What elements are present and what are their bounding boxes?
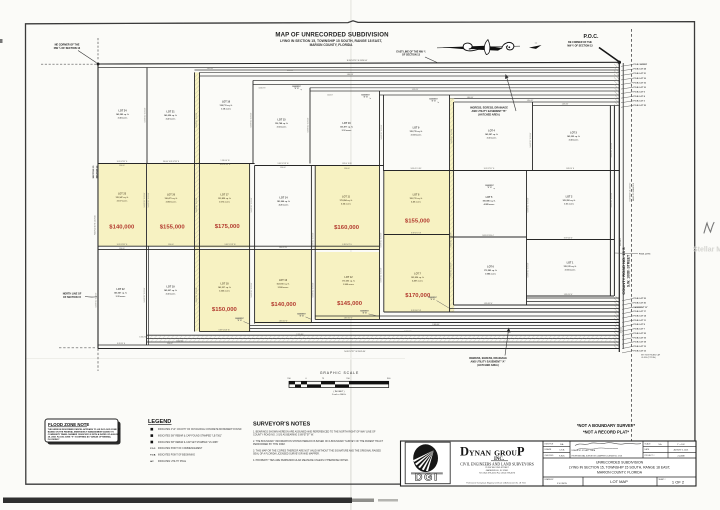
svg-text:LOT 20: LOT 20	[167, 194, 176, 197]
svg-text:330.00': 330.00'	[280, 167, 286, 169]
svg-text:1315.74': 1315.74'	[139, 336, 147, 338]
svg-text:145,047 sq. ft.: 145,047 sq. ft.	[114, 292, 128, 295]
svg-text:A/C: A/C	[150, 460, 154, 463]
svg-text:$145,000: $145,000	[337, 301, 363, 307]
svg-text:N 00°07'42" E 396.00': N 00°07'42" E 396.00'	[527, 262, 529, 277]
svg-text:$140,000: $140,000	[271, 302, 297, 308]
svg-text:PROJECT #: PROJECT #	[645, 455, 655, 457]
svg-text:LYING IN SECTION 15, TOWNSHIP: LYING IN SECTION 15, TOWNSHIP 15 SOUTH, …	[569, 466, 671, 470]
svg-text:1309.60' W: 1309.60' W	[344, 317, 353, 319]
svg-text:LOT 16: LOT 16	[222, 101, 231, 104]
svg-text:330.02': 330.02'	[167, 343, 173, 345]
svg-text:LOT 4: LOT 4	[488, 130, 495, 133]
svg-text:LOT 6: LOT 6	[487, 266, 494, 269]
svg-text:LOT 8: LOT 8	[413, 194, 420, 197]
svg-text:S 89°52'51" E 2624.56': S 89°52'51" E 2624.56'	[347, 60, 368, 62]
svg-text:150: 150	[287, 378, 291, 380]
svg-text:N 00°07'42" E 396.00': N 00°07'42" E 396.00'	[530, 132, 532, 147]
svg-text:135,347 sq. ft.: 135,347 sq. ft.	[115, 196, 129, 199]
svg-text:300: 300	[387, 378, 391, 380]
svg-text:( IN FEET ): ( IN FEET )	[333, 391, 344, 393]
svg-text:PROFESSIONAL SURVEYOR & MAPPER: PROFESSIONAL SURVEYOR & MAPPER LICENSE N…	[572, 455, 623, 458]
svg-text:P.O.B. LOT 14: P.O.B. LOT 14	[634, 315, 647, 318]
svg-text:330.05' W: 330.05' W	[279, 247, 287, 249]
svg-text:195,956 sq. ft.: 195,956 sq. ft.	[411, 276, 425, 279]
svg-text:INDICATES 5/8" REBAR & CAP SET: INDICATES 5/8" REBAR & CAP SET STAMPED "…	[158, 441, 218, 444]
svg-text:EASEMENT: EASEMENT	[292, 85, 300, 88]
svg-text:152,815 sq. ft.: 152,815 sq. ft.	[276, 283, 290, 286]
svg-text:DRAWN BY: DRAWN BY	[545, 478, 555, 481]
svg-text:3.22 acres: 3.22 acres	[166, 119, 177, 121]
svg-text:N 00°12'35" E 1317.56': N 00°12'35" E 1317.56'	[95, 215, 97, 235]
svg-text:1433.83' 330.4': 1433.83' 330.4'	[482, 235, 494, 237]
svg-text:N 00°07'42" E 396.00': N 00°07'42" E 396.00'	[312, 282, 314, 297]
svg-text:1495.05' S 89°: 1495.05' S 89°	[410, 168, 421, 170]
svg-text:OF SECTION 13: OF SECTION 13	[402, 54, 421, 57]
svg-text:P.O.B. LOT 13: P.O.B. LOT 13	[634, 346, 646, 348]
svg-text:Tel: (352) 378-4154 Fax: (35: Tel: (352) 378-4154 Fax: (352) 378-4676	[479, 473, 516, 475]
svg-text:N 00°07'42" E 396.00': N 00°07'42" E 396.00'	[251, 197, 253, 212]
svg-text:135,741 sq. ft.: 135,741 sq. ft.	[563, 265, 577, 268]
svg-text:N 00°07'42" E 396.00': N 00°07'42" E 396.00'	[381, 124, 383, 139]
svg-text:1313.46': 1313.46'	[404, 331, 412, 333]
svg-text:N 00°07'42" E 396.00': N 00°07'42" E 396.00'	[144, 287, 146, 302]
svg-text:P.O.C.: P.O.C.	[150, 448, 156, 450]
svg-text:138,711 sq. ft.: 138,711 sq. ft.	[219, 104, 232, 107]
svg-text:COUNTY ROAD NO. 3 S/S AS BEARI: COUNTY ROAD NO. 3 S/S AS BEARING S 89°57…	[253, 433, 314, 436]
svg-text:P.O.B. LOT 21: P.O.B. LOT 21	[634, 73, 646, 75]
svg-text:(HATCHED AREA): (HATCHED AREA)	[478, 114, 500, 117]
svg-text:AUGUST 5, 2021: AUGUST 5, 2021	[674, 449, 689, 452]
svg-text:Stellar MLS: Stellar MLS	[693, 247, 720, 254]
svg-text:N 00°07'42" E 396.00': N 00°07'42" E 396.00'	[196, 287, 198, 302]
svg-text:P.O.B. LOT 22: P.O.B. LOT 22	[634, 333, 646, 335]
svg-text:1435.24' W: 1435.24' W	[564, 294, 573, 296]
svg-text:330.00': 330.00'	[119, 165, 125, 167]
svg-text:GRAPHIC SCALE: GRAPHIC SCALE	[320, 371, 359, 375]
svg-text:1470.25': 1470.25'	[412, 89, 419, 91]
svg-text:MARION COUNTY, FLORIDA: MARION COUNTY, FLORIDA	[597, 471, 643, 475]
svg-text:N 00°07'42" E 396.00': N 00°07'42" E 396.00'	[381, 267, 383, 282]
svg-text:LOT 14: LOT 14	[279, 197, 288, 200]
svg-text:INDICATES 4"x4" COUNTY OF OCTA: INDICATES 4"x4" COUNTY OF OCTAGONAL CONC…	[158, 428, 242, 431]
svg-text:4.385 acres: 4.385 acres	[484, 203, 496, 206]
svg-text:$150,000: $150,000	[212, 307, 238, 313]
svg-text:$155,000: $155,000	[405, 218, 431, 224]
svg-text:LOT 22: LOT 22	[116, 288, 125, 291]
svg-text:3.01 acres: 3.01 acres	[564, 204, 575, 206]
svg-text:N 00°07'42" E 396.00': N 00°07'42" E 396.00'	[196, 112, 198, 127]
svg-text:330.00': 330.00'	[119, 248, 125, 250]
svg-text:P.O.B. LOT 8: P.O.B. LOT 8	[634, 324, 645, 326]
svg-text:1450.82': 1450.82'	[527, 100, 534, 102]
svg-text:S 89°54'1" E: S 89°54'1" E	[342, 244, 352, 246]
svg-text:140,056 sq. ft.: 140,056 sq. ft.	[164, 114, 178, 117]
svg-text:330.00' S 89°47'33" E: 330.00' S 89°47'33" E	[163, 161, 180, 163]
svg-text:P.O.B. LOT 10: P.O.B. LOT 10	[634, 87, 646, 89]
svg-text:$140,000: $140,000	[109, 224, 135, 230]
svg-text:LOT 7: LOT 7	[414, 273, 421, 276]
svg-text:S 89°51'33" E: S 89°51'33" E	[117, 244, 128, 246]
svg-text:SECTION 10: SECTION 10	[93, 165, 95, 179]
svg-text:P.O.B. LOT 18: P.O.B. LOT 18	[634, 342, 646, 344]
svg-text:330.00': 330.00'	[168, 244, 174, 246]
svg-text:DWG FILE: DWG FILE	[545, 444, 554, 446]
svg-text:$170,000: $170,000	[405, 293, 431, 299]
svg-text:142,237 sq. ft.: 142,237 sq. ft.	[218, 286, 232, 289]
svg-text:SEAL OF A FLORIDA LICENSED SUR: SEAL OF A FLORIDA LICENSED SURVEYOR AND …	[253, 453, 320, 456]
svg-text:SECTION 15: SECTION 15	[96, 165, 98, 179]
svg-text:$155,000: $155,000	[160, 224, 186, 230]
svg-text:N 00°07'42" E 396.00': N 00°07'42" E 396.00'	[148, 192, 150, 207]
svg-text:P.O.B. LOT 5: P.O.B. LOT 5	[639, 254, 650, 256]
svg-text:NE CORNER OF THE: NE CORNER OF THE	[55, 44, 80, 47]
svg-text:MAP OF UNRECORDED SUBDIVISION: MAP OF UNRECORDED SUBDIVISION	[275, 32, 388, 39]
svg-text:$160,000: $160,000	[334, 225, 360, 231]
svg-text:P.O.B. LOT 24: P.O.B. LOT 24	[634, 68, 647, 71]
svg-text:LS 4696 (TYPICAL): LS 4696 (TYPICAL)	[641, 356, 656, 359]
svg-text:*NOT A RECORD PLAT*: *NOT A RECORD PLAT*	[583, 429, 629, 434]
svg-text:P.O.B. LOT 9: P.O.B. LOT 9	[634, 91, 645, 93]
svg-text:N 00°07'42" E 396.00': N 00°07'42" E 396.00'	[250, 112, 252, 127]
svg-text:1495.05': 1495.05'	[207, 68, 214, 70]
svg-text:N 00°07'42" E 396.00': N 00°07'42" E 396.00'	[312, 232, 314, 247]
svg-text:3.33 acres: 3.33 acres	[116, 296, 127, 298]
svg-text:NW ¼ OF SECTION 13: NW ¼ OF SECTION 13	[567, 43, 593, 47]
svg-text:3.508 acres: 3.508 acres	[278, 287, 290, 289]
svg-text:P.O.B. LOT 15: P.O.B. LOT 15	[634, 82, 646, 84]
svg-text:LOT MAP: LOT MAP	[610, 479, 628, 484]
svg-text:P.O.B. LOT 7: P.O.B. LOT 7	[634, 329, 645, 331]
svg-text:MARION COUNTY, FLORIDA: MARION COUNTY, FLORIDA	[310, 43, 354, 47]
svg-text:S 89°53' E: S 89°53' E	[117, 343, 126, 345]
svg-text:S 89°52'18" W: S 89°52'18" W	[278, 163, 289, 165]
svg-text:N 00°07'42" E 396.00': N 00°07'42" E 396.00'	[451, 262, 453, 277]
svg-text:P.O.C.: P.O.C.	[584, 34, 599, 40]
svg-text:1 OF 2: 1 OF 2	[672, 480, 685, 485]
svg-text:133,859 sq. ft.: 133,859 sq. ft.	[218, 197, 232, 200]
svg-text:S 00°02'23" W 1337.71': S 00°02'23" W 1337.71'	[630, 182, 632, 202]
svg-text:S 89°57'4" W: S 89°57'4" W	[411, 232, 421, 234]
svg-text:P.O.B. LOT 20: P.O.B. LOT 20	[634, 302, 646, 304]
svg-text:FLOODING".: FLOODING".	[48, 439, 61, 441]
svg-text:N.A.: N.A.	[560, 443, 564, 446]
svg-text:4.497 acres: 4.497 acres	[412, 280, 424, 283]
svg-text:OF SECTION 15: OF SECTION 15	[63, 296, 82, 299]
svg-text:0: 0	[305, 378, 307, 380]
svg-text:S 89°57'51" E: S 89°57'51" E	[484, 168, 495, 170]
svg-text:S 89°56'4" W: S 89°56'4" W	[411, 310, 421, 312]
svg-text:CIVIL ENGINEERS AND LAND SURVE: CIVIL ENGINEERS AND LAND SURVEYORS	[460, 462, 534, 466]
svg-text:N 00°07'42" E 396.00': N 00°07'42" E 396.00'	[381, 232, 383, 247]
svg-text:LOT 1: LOT 1	[567, 262, 574, 265]
svg-text:SHEET #: SHEET #	[659, 479, 666, 481]
svg-text:183,066 sq. ft.: 183,066 sq. ft.	[277, 200, 291, 203]
svg-text:P.O.B. LOT 16: P.O.B. LOT 16	[634, 78, 646, 80]
svg-text:LOT 11: LOT 11	[342, 196, 351, 199]
svg-text:4.49 acres: 4.49 acres	[411, 201, 422, 204]
svg-text:$175,000: $175,000	[215, 224, 241, 230]
svg-text:75: 75	[322, 378, 325, 380]
svg-text:190,986 sq. ft.: 190,986 sq. ft.	[482, 200, 496, 203]
svg-text:145,007 sq. ft.: 145,007 sq. ft.	[164, 289, 178, 292]
svg-text:29 SW SECOND STREET: 29 SW SECOND STREET	[485, 467, 509, 469]
svg-text:N 00°07'42" E 396.00': N 00°07'42" E 396.00'	[307, 117, 309, 132]
svg-text:145,382 sq. ft.: 145,382 sq. ft.	[116, 113, 130, 116]
svg-text:S.W. 100th STREET: S.W. 100th STREET	[626, 254, 630, 287]
svg-text:GAINESVILLE, FL 32601: GAINESVILLE, FL 32601	[486, 469, 509, 472]
svg-text:S 89°47'33" E: S 89°47'33" E	[117, 161, 128, 163]
svg-text:INDICATES POINT OF COMMENCEMEN: INDICATES POINT OF COMMENCEMENT	[158, 447, 203, 450]
svg-text:1" = 100': 1" = 100'	[677, 444, 685, 446]
svg-text:LOT 18: LOT 18	[220, 283, 229, 286]
svg-text:3.116 acres: 3.116 acres	[565, 270, 577, 272]
svg-text:N 00°07'42" E 396.00': N 00°07'42" E 396.00'	[144, 107, 146, 122]
svg-text:135,877 sq. ft.: 135,877 sq. ft.	[340, 126, 354, 129]
svg-text:K.W. SMITH: K.W. SMITH	[557, 483, 568, 485]
svg-text:(HATCHED AREA): (HATCHED AREA)	[477, 364, 499, 367]
svg-text:1435.83' W: 1435.83' W	[484, 303, 493, 305]
svg-text:PERFORMED BY THIS FIRM.: PERFORMED BY THIS FIRM.	[253, 443, 286, 446]
svg-text:4.20 acres: 4.20 acres	[279, 204, 290, 207]
svg-text:1435.8' E: 1435.8' E	[258, 88, 266, 90]
svg-text:SURVEYOR'S NOTES: SURVEYOR'S NOTES	[253, 421, 310, 427]
svg-text:3.34 acres: 3.34 acres	[569, 139, 580, 142]
svg-text:INDICATES 5/8" REBAR & CAP FOU: INDICATES 5/8" REBAR & CAP FOUND STAMPED…	[158, 434, 222, 437]
svg-text:K.W.S.: K.W.S.	[559, 455, 565, 457]
svg-text:N 00°07'42" E 396.00': N 00°07'42" E 396.00'	[527, 197, 529, 212]
svg-text:1480.98': 1480.98'	[347, 74, 354, 76]
svg-text:S 89°51'18" W: S 89°51'18" W	[225, 244, 236, 246]
svg-text:SCALE: SCALE	[645, 443, 652, 446]
svg-text:1490.11': 1490.11'	[287, 70, 294, 72]
svg-text:P.O.B.: P.O.B.	[150, 455, 156, 457]
svg-text:3.985 acres: 3.985 acres	[485, 274, 497, 276]
svg-text:INDICATES POINT OF BEGINNING: INDICATES POINT OF BEGINNING	[158, 454, 195, 457]
svg-text:CHECKED: CHECKED	[545, 455, 554, 457]
svg-text:*NOT A BOUNDARY SURVEY*: *NOT A BOUNDARY SURVEY*	[577, 423, 635, 428]
svg-text:P.O.B. SURVEY: P.O.B. SURVEY	[634, 64, 648, 66]
svg-text:LOT 17: LOT 17	[220, 194, 229, 197]
svg-text:FLOOD ZONE NOTE: FLOOD ZONE NOTE	[48, 422, 89, 427]
svg-text:LOT 10: LOT 10	[342, 122, 351, 125]
svg-text:P.O.B. LOT 35: P.O.B. LOT 35	[634, 105, 646, 107]
svg-text:LOT 2: LOT 2	[566, 196, 573, 199]
svg-text:1445.60': 1445.60'	[562, 104, 569, 106]
svg-text:LOT 15: LOT 15	[277, 119, 286, 122]
svg-text:P.O.B. LOT 12: P.O.B. LOT 12	[634, 350, 646, 352]
svg-text:EASEMENT: EASEMENT	[485, 184, 493, 187]
svg-text:P.O.B. LOT 23: P.O.B. LOT 23	[634, 298, 646, 300]
svg-text:145,287 sq. ft.: 145,287 sq. ft.	[485, 133, 499, 136]
svg-text:DRAWN: DRAWN	[545, 448, 552, 451]
svg-text:170,293 sq. ft.: 170,293 sq. ft.	[342, 280, 356, 283]
svg-text:3.33 acres: 3.33 acres	[487, 138, 498, 140]
svg-text:3.107 acres: 3.107 acres	[117, 201, 129, 203]
svg-text:125,352 sq. ft.: 125,352 sq. ft.	[562, 199, 576, 202]
svg-text:N 00°07'42" E 396.00': N 00°07'42" E 396.00'	[144, 192, 146, 207]
svg-text:3.909 acres: 3.909 acres	[343, 284, 355, 286]
svg-text:195,731 sq. ft.: 195,731 sq. ft.	[409, 197, 423, 200]
svg-text:4. PROPERTY TIES ARE PERPENDIC: 4. PROPERTY TIES ARE PERPENDICULAR MEASU…	[253, 459, 349, 462]
svg-text:LOT 12: LOT 12	[344, 276, 353, 279]
svg-text:173,583 sq. ft.: 173,583 sq. ft.	[484, 269, 498, 272]
svg-text:N.A.: N.A.	[659, 443, 663, 446]
svg-text:136,748 sq. ft.: 136,748 sq. ft.	[275, 122, 289, 125]
svg-text:3.34 acres: 3.34 acres	[118, 117, 129, 120]
svg-text:N 00°07'42" E 396.00': N 00°07'42" E 396.00'	[611, 192, 613, 207]
svg-text:NW ¼ OF SECTION 13: NW ¼ OF SECTION 13	[54, 46, 81, 50]
svg-text:N 00°07'42" E 396.00': N 00°07'42" E 396.00'	[95, 292, 97, 307]
svg-text:1425.8': 1425.8'	[327, 95, 333, 97]
svg-text:DGI: DGI	[415, 472, 439, 484]
svg-text:Professional Surveying & Mappi: Professional Surveying & Mapping Certifi…	[466, 482, 525, 485]
svg-text:1315.4' S 89°: 1315.4' S 89°	[342, 163, 352, 165]
svg-text:ASPHALT: ASPHALT	[619, 238, 622, 246]
svg-text:3.33 acres: 3.33 acres	[166, 294, 177, 296]
svg-text:1 330.00' W: 1 330.00' W	[221, 160, 230, 162]
svg-text:P.O.B. LOT 3: P.O.B. LOT 3	[634, 101, 645, 103]
svg-text:BASIS OF BEARINGS: BASIS OF BEARINGS	[632, 182, 635, 201]
svg-text:LOT 23: LOT 23	[118, 193, 127, 196]
svg-text:1460.40': 1460.40'	[467, 97, 474, 99]
svg-text:1 inch = 300 ft.: 1 inch = 300 ft.	[332, 393, 347, 396]
svg-text:3.083 acres: 3.083 acres	[166, 202, 178, 204]
svg-text:1313.33': 1313.33'	[620, 326, 622, 333]
svg-text:150: 150	[346, 378, 350, 380]
svg-text:EASEMENT: EASEMENT	[361, 93, 369, 96]
svg-text:S 89°53'18" W: S 89°53'18" W	[219, 330, 230, 332]
svg-text:1309.62' W: 1309.62' W	[279, 321, 288, 323]
svg-text:145,392 sq. ft.: 145,392 sq. ft.	[567, 135, 581, 138]
svg-text:3.12 acres: 3.12 acres	[342, 130, 353, 132]
svg-text:DATE: DATE	[645, 448, 650, 451]
svg-text:LOT 13: LOT 13	[279, 279, 288, 282]
svg-text:N 00°07'42" E 396.00': N 00°07'42" E 396.00'	[196, 197, 198, 212]
svg-text:N 89°57'27" W 2625.34': N 89°57'27" W 2625.34'	[344, 351, 366, 353]
svg-text:1309.60': 1309.60'	[432, 324, 440, 326]
svg-text:175,854 sq. ft.: 175,854 sq. ft.	[339, 199, 353, 202]
svg-text:EASEMENT: EASEMENT	[429, 97, 437, 100]
svg-text:LOT 5: LOT 5	[486, 196, 493, 199]
svg-text:P.O.B. LOT 11: P.O.B. LOT 11	[634, 320, 646, 322]
svg-text:N 00°07'42" E 396.00': N 00°07'42" E 396.00'	[611, 142, 613, 157]
svg-text:EASEMENT "A": EASEMENT "A"	[634, 306, 648, 309]
svg-text:135,776 sq. ft.: 135,776 sq. ft.	[409, 130, 423, 133]
svg-text:LOT 3: LOT 3	[570, 132, 577, 135]
svg-text:N 00°07'42" E 396.00': N 00°07'42" E 396.00'	[251, 282, 253, 297]
svg-text:21-0588: 21-0588	[678, 455, 685, 457]
svg-text:4.04 acres: 4.04 acres	[341, 203, 352, 206]
svg-text:xxx: xxx	[535, 43, 538, 45]
svg-text:330.00': 330.00'	[344, 168, 350, 170]
svg-text:C.S.B.: C.S.B.	[559, 450, 565, 452]
svg-text:3.18 acres: 3.18 acres	[221, 109, 232, 111]
svg-text:INDICATES UTILITY POLE: INDICATES UTILITY POLE	[158, 460, 186, 463]
svg-text:N 00°07'42" E 396.00': N 00°07'42" E 396.00'	[451, 232, 453, 247]
svg-text:N 00°07'42" E 396.00': N 00°07'42" E 396.00'	[451, 128, 453, 143]
svg-text:S 89°47'33" E: S 89°47'33" E	[220, 164, 231, 166]
svg-text:3.073 acres: 3.073 acres	[219, 202, 231, 204]
svg-text:S 89°54' W: S 89°54' W	[564, 238, 573, 240]
svg-text:136,471 sq. ft.: 136,471 sq. ft.	[164, 197, 178, 200]
svg-text:LOT 24: LOT 24	[118, 110, 127, 113]
svg-text:3.14 acres: 3.14 acres	[277, 126, 288, 129]
svg-text:LOT 21: LOT 21	[166, 111, 175, 114]
svg-text:1435.24' E: 1435.24' E	[566, 168, 575, 170]
svg-text:3.265 acres: 3.265 acres	[219, 291, 231, 293]
svg-text:LOT 9: LOT 9	[413, 127, 420, 130]
svg-text:P.O.B. LOT 4: P.O.B. LOT 4	[634, 95, 646, 98]
svg-text:LOT 19: LOT 19	[166, 286, 175, 289]
svg-text:3.118 acres: 3.118 acres	[411, 135, 423, 137]
svg-text:P.O.B. LOT 19: P.O.B. LOT 19	[634, 337, 646, 339]
svg-text:P.O.B. LOT 17: P.O.B. LOT 17	[634, 311, 646, 313]
svg-text:UNRECORDED SUBDIVISION: UNRECORDED SUBDIVISION	[596, 460, 644, 464]
